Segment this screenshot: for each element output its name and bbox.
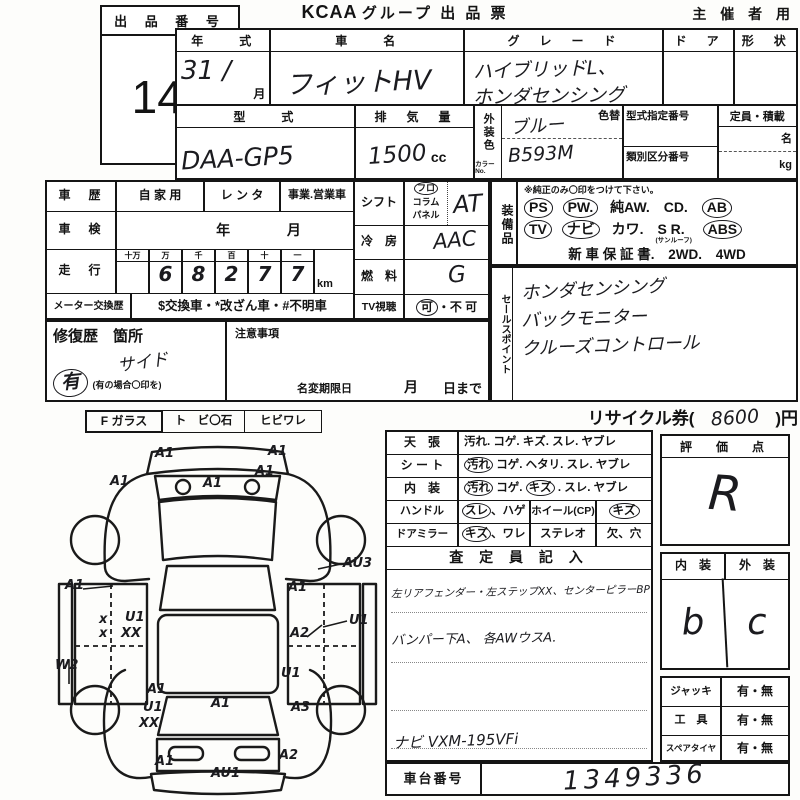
shift-panel-option: パネル xyxy=(405,208,447,221)
int-ext-box: 内 装 外 装 b c xyxy=(660,552,790,670)
shift-label: シフト xyxy=(355,182,405,225)
interior-scratch-option: キズ xyxy=(526,480,555,496)
color-no-value: B593M xyxy=(508,139,623,167)
diagram-damage-label: A1 xyxy=(155,754,174,769)
sheet-title: KCAA グループ 出 品 票 xyxy=(240,2,570,23)
rating-value: R xyxy=(660,462,790,527)
odometer-digit-cell: 千 8 xyxy=(183,250,216,293)
diagram-damage-label: AU1 xyxy=(211,766,240,781)
grade-label: グ レ ー ド xyxy=(465,30,662,52)
mirror-scratch-option: キズ xyxy=(462,526,491,542)
diagram-damage-label: A3 xyxy=(291,700,310,715)
recycle-suffix: )円 xyxy=(775,409,798,428)
chassis-box: 車台番号 1349336 xyxy=(385,762,790,796)
tools-value: 有・無 xyxy=(722,707,788,735)
diagram-damage-label: A1 xyxy=(65,578,84,593)
inspection-year: 年 xyxy=(216,220,230,240)
title-text: グループ 出 品 票 xyxy=(362,5,509,22)
diagram-damage-label: XX xyxy=(121,626,141,641)
equip-leather: カワ. xyxy=(612,221,644,237)
equip-warranty: 新 車 保 証 書. xyxy=(568,247,654,262)
condition-table: 天 張 汚れ. コゲ. キズ. スレ. ヤブレ シ ー ト 汚れ コゲ. ヘタリ… xyxy=(385,430,653,762)
type-cert-label: 型式指定番号 xyxy=(624,106,716,147)
color-no-label: カラーNo. xyxy=(475,158,501,175)
diagram-damage-label: A1 xyxy=(268,444,287,459)
glass-crack-option: ヒビワレ xyxy=(245,410,322,433)
wheel-scratch-option: キズ xyxy=(609,503,640,519)
inspector-nav-line: ナビ VXM-195VFi xyxy=(393,728,519,753)
controls-table: シフト フロ コラム パネル AT 冷 房 AAC 燃 料 G TV視聴 xyxy=(353,180,490,320)
inspection-value: 年 月 xyxy=(117,212,353,249)
equip-2wd: 2WD. xyxy=(668,247,702,262)
repair-has-note: (有の場合〇印を) xyxy=(92,380,161,390)
ac-label: 冷 房 xyxy=(355,226,405,259)
seat-dirty-option: 汚れ xyxy=(464,457,493,473)
diagram-damage-label: A1 xyxy=(110,474,129,489)
rating-label: 評 価 点 xyxy=(662,436,788,458)
recycle-amount: 8600 xyxy=(698,405,771,432)
diagram-damage-label: A1 xyxy=(288,580,307,595)
rename-day: 日まで xyxy=(443,378,482,397)
diagram-damage-label: A2 xyxy=(290,626,309,641)
displacement-value: 1500 xyxy=(367,140,427,170)
ceiling-label: 天 張 xyxy=(387,432,459,454)
owner-business: 事業.営業車 xyxy=(281,182,353,211)
equip-aw: 純AW. xyxy=(610,199,650,215)
equip-ps: PS xyxy=(524,198,553,218)
capacity-cell: 定員・積載 名 kg xyxy=(719,106,797,180)
equip-pw: PW. xyxy=(563,198,599,218)
interior-grade-value: b xyxy=(660,578,729,670)
equip-sr: S R.(サンルーフ) xyxy=(657,221,684,237)
vehicle-table: 年 式 31 / 月 車 名 フィットHV グ レ ー ド ハイブリッドL、 ホ… xyxy=(175,28,798,180)
odometer-digit-cell: 十万 xyxy=(117,250,150,293)
fuel-label: 燃 料 xyxy=(355,260,405,294)
inspection-month: 月 xyxy=(287,220,301,240)
shift-floor-option: フロ xyxy=(414,182,438,195)
equipment-note: ※純正のみ〇印をつけて下さい。 xyxy=(524,183,790,196)
handle-wear-option: スレ xyxy=(462,503,491,519)
capacity-weight: kg xyxy=(719,152,797,176)
ext-color-label: 外装色 xyxy=(480,106,496,158)
inspector-line1: 左リアフェンダー・左ステップXX、センターピラーBP xyxy=(391,582,650,602)
jack-value: 有・無 xyxy=(722,678,788,706)
rename-deadline-label: 名変期限日 xyxy=(297,380,352,396)
model-code-label: 型 式 xyxy=(177,106,354,128)
interior-dirty-option: 汚れ xyxy=(464,480,493,496)
caution-label: 注意事項 xyxy=(227,322,488,344)
ceiling-options: 汚れ. コゲ. キズ. スレ. ヤブレ xyxy=(459,432,651,454)
color-value: ブルー xyxy=(509,106,623,140)
diagram-damage-label: W2 xyxy=(55,658,78,673)
equip-tv: TV xyxy=(524,220,552,240)
diagram-damage-label: U1 xyxy=(349,613,369,628)
type-cert-cell: 型式指定番号 類別区分番号 xyxy=(624,106,718,180)
stereo-label: ステレオ xyxy=(531,524,597,546)
odometer-label: 走 行 xyxy=(47,250,117,293)
shift-column-option: コラム xyxy=(405,195,447,208)
fuel-value: G xyxy=(448,262,467,289)
diagram-damage-label: A1 xyxy=(255,464,274,479)
diagram-damage-label: U1 xyxy=(125,610,145,625)
sales-point-box: セールスポイント ホンダセンシング バックモニター クルーズコントロール xyxy=(490,266,798,402)
repair-label: 修復歴 箇所 xyxy=(47,322,225,349)
displacement-cell: 排 気 量 1500 cc xyxy=(356,106,475,180)
glass-f-label: F ガラス xyxy=(85,410,163,433)
diagram-damage-label: XX xyxy=(139,716,159,731)
capacity-persons: 名 xyxy=(719,127,797,151)
equip-cd: CD. xyxy=(664,199,688,215)
car-name-value: フィットHV xyxy=(285,57,464,102)
tv-label: TV視聴 xyxy=(355,295,405,321)
repair-has: 有 xyxy=(52,367,90,398)
glass-chip-option: ト ビ〇石 xyxy=(163,410,245,433)
diagram-damage-label: A1 xyxy=(147,682,166,697)
chassis-label: 車台番号 xyxy=(387,764,482,794)
jack-label: ジャッキ xyxy=(662,678,722,706)
shape-label: 形 状 xyxy=(735,30,796,52)
owner-rental: レ ン タ xyxy=(205,182,281,211)
shift-value: AT xyxy=(452,189,483,219)
chassis-value: 1349336 xyxy=(481,756,788,800)
diagram-damage-label: A1 xyxy=(211,696,230,711)
corner-label: 主 催 者 用 xyxy=(660,4,795,24)
meter-note: $交換車・*改ざん車・#不明車 xyxy=(132,294,353,321)
displacement-unit: cc xyxy=(431,149,447,165)
diagram-damage-label: x xyxy=(99,612,107,627)
inspector-line2: バンパー下A、 各AWウスA. xyxy=(391,627,557,649)
auction-sheet: 出 品 番 号 143 KCAA グループ 出 品 票 主 催 者 用 年 式 … xyxy=(0,0,800,800)
door-label: ド ア xyxy=(664,30,734,52)
history-table: 車 歴 自 家 用 レ ン タ 事業.営業車 車 検 年 月 走 行 十万 万 … xyxy=(45,180,355,320)
interior-grade-label: 内 装 xyxy=(662,554,726,579)
sales-point-label: セールスポイント xyxy=(492,268,513,400)
year-value: 31 / xyxy=(181,56,269,86)
model-code-value: DAA-GP5 xyxy=(180,137,354,175)
glass-row: F ガラス ト ビ〇石 ヒビワレ xyxy=(85,410,322,433)
handle-label: ハンドル xyxy=(387,501,459,523)
odometer-unit-cell: km xyxy=(315,250,353,293)
equip-abs: ABS xyxy=(703,220,743,240)
rename-month: 月 xyxy=(404,377,418,397)
odometer-digit-cell: 万 6 xyxy=(150,250,183,293)
equip-navi: ナビ xyxy=(562,220,600,240)
odometer-unit: km xyxy=(317,278,333,290)
title-logo: KCAA xyxy=(301,2,357,22)
diagram-damage-label: A1 xyxy=(203,476,222,491)
ext-color-cell: 外装色 カラーNo. 色替 ブルー B593M xyxy=(475,106,624,180)
displacement-label: 排 気 量 xyxy=(356,106,473,128)
class-no-label: 類別区分番号 xyxy=(624,147,716,166)
shape-cell: 形 状 xyxy=(735,30,796,104)
equip-ab: AB xyxy=(702,198,732,218)
diagram-damage-label: A2 xyxy=(279,748,298,763)
tv-ng-option: 不 可 xyxy=(450,300,477,314)
mirror-label: ドアミラー xyxy=(387,524,459,546)
owner-private: 自 家 用 xyxy=(117,182,205,211)
stereo-option: 欠、穴 xyxy=(597,524,651,546)
capacity-label: 定員・積載 xyxy=(719,106,797,127)
recycle-prefix: リサイクル券( xyxy=(588,409,695,428)
rating-box: 評 価 点 R xyxy=(660,434,790,546)
exterior-grade-value: c xyxy=(724,578,791,670)
odometer-digit-cell: 百 2 xyxy=(216,250,249,293)
car-name-label: 車 名 xyxy=(271,30,463,52)
equipment-box: 装備品 ※純正のみ〇印をつけて下さい。 PS PW. 純AW. CD. AB T… xyxy=(490,180,798,266)
interior-label: 内 装 xyxy=(387,478,459,500)
model-code-cell: 型 式 DAA-GP5 xyxy=(177,106,356,180)
diagram-damage-label: x xyxy=(99,626,107,641)
exterior-grade-label: 外 装 xyxy=(726,554,788,579)
ac-value: AAC xyxy=(432,226,477,254)
odometer-digit-cell: 十 7 xyxy=(249,250,282,293)
accessories-box: ジャッキ 有・無 工 具 有・無 スペアタイヤ 有・無 xyxy=(660,676,790,762)
car-name-cell: 車 名 フィットHV xyxy=(271,30,465,104)
inspector-title: 査 定 員 記 入 xyxy=(387,547,651,570)
car-history-label: 車 歴 xyxy=(47,182,117,211)
odometer-digit-cell: 一 7 xyxy=(282,250,315,293)
year-month-label: 月 xyxy=(253,85,265,102)
year-label: 年 式 xyxy=(177,30,269,52)
wheel-label: ホイール(CP) xyxy=(531,501,597,523)
sr-note: (サンルーフ) xyxy=(655,234,691,244)
diagram-damage-label: U1 xyxy=(281,666,301,681)
tools-label: 工 具 xyxy=(662,707,722,735)
repair-box: 修復歴 箇所 サイド 有 (有の場合〇印を) 注意事項 名変期限日 月 日まで xyxy=(45,320,490,402)
inspection-label: 車 検 xyxy=(47,212,117,249)
equip-4wd: 4WD xyxy=(716,247,746,262)
diagram-damage-label: A1 xyxy=(155,446,174,461)
door-cell: ド ア xyxy=(664,30,736,104)
year-cell: 年 式 31 / 月 xyxy=(177,30,271,104)
inspector-notes: 左リアフェンダー・左ステップXX、センターピラーBP バンパー下A、 各AWウス… xyxy=(387,570,651,768)
diagram-damage-label: AU3 xyxy=(343,556,372,571)
car-diagram-labels: A1A1A1A1A1A1AU3A1U1A2xxU1XXW2U1A1U1XXA1A… xyxy=(55,438,380,798)
spare-tire-label: スペアタイヤ xyxy=(662,736,722,762)
interior-options: . スレ. ヤブレ xyxy=(558,482,628,494)
grade-cell: グ レ ー ド ハイブリッドL、 ホンダセンシング xyxy=(465,30,664,104)
diagram-damage-label: U1 xyxy=(143,700,163,715)
seat-options: コゲ. ヘタリ. スレ. ヤブレ xyxy=(496,459,630,471)
shift-value-cell: フロ コラム パネル AT xyxy=(405,182,488,225)
meter-label: メーター交換歴 xyxy=(47,294,132,321)
tv-ok-option: 可 xyxy=(416,299,438,316)
recycle-line: リサイクル券( 8600 )円 xyxy=(415,404,798,429)
car-diagram: A1A1A1A1A1A1AU3A1U1A2xxU1XXW2U1A1U1XXA1A… xyxy=(55,438,380,798)
equipment-label: 装備品 xyxy=(492,182,518,264)
seat-label: シ ー ト xyxy=(387,455,459,477)
